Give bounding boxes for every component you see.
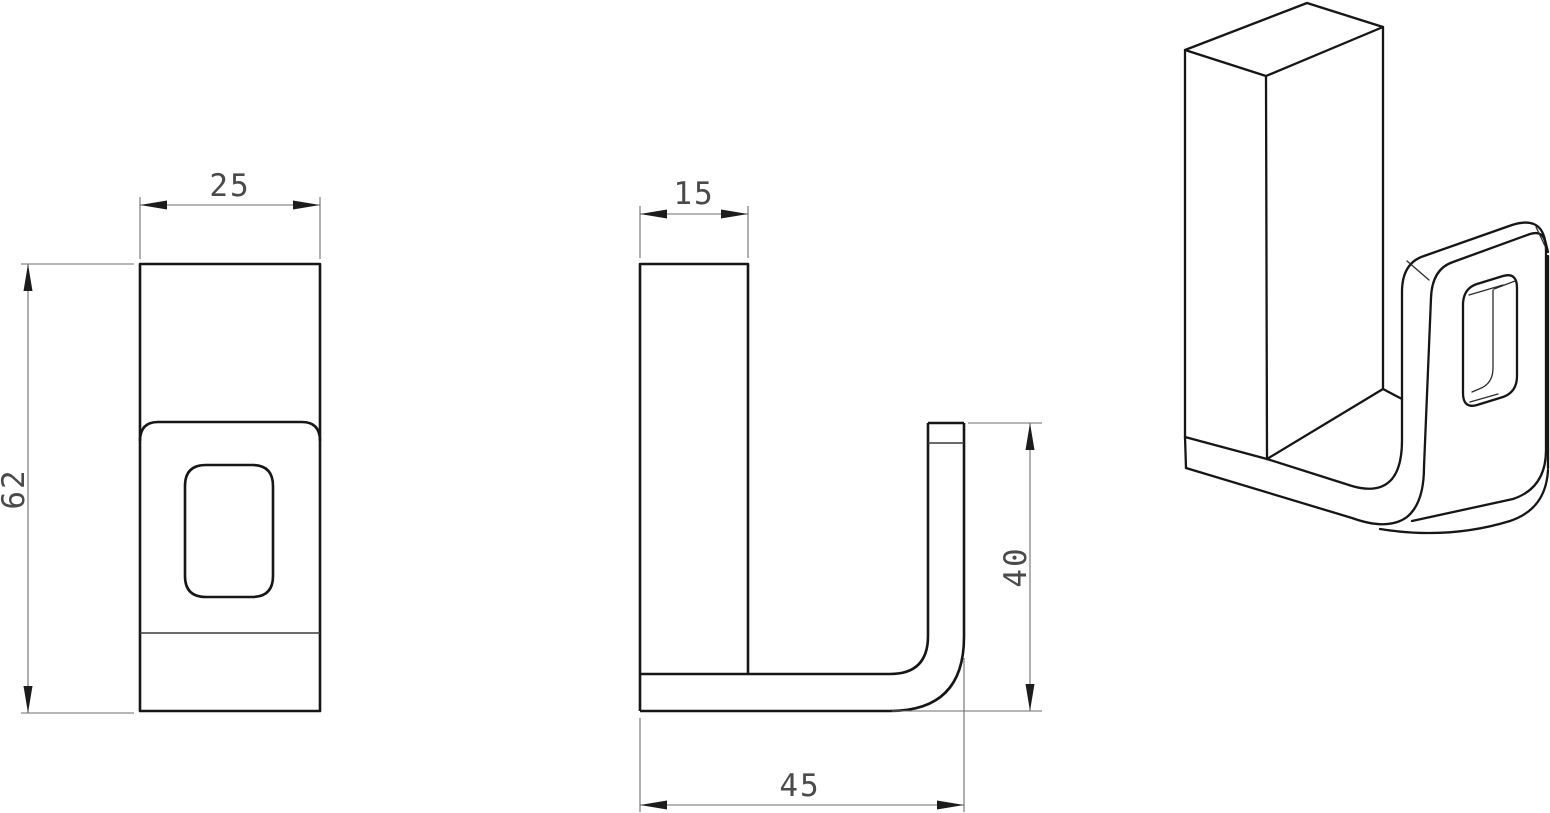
dim-label-15: 15 [673,176,714,212]
dim-label-45: 45 [779,768,820,804]
iso-base-left-corner-edge [1185,437,1186,468]
dimension-front-width: 25 [140,168,320,259]
front-hook-plate-top-edge [140,422,320,441]
arrowhead-up [24,264,33,291]
iso-plate-front-face-outline [1186,233,1546,524]
arrowhead-down [24,686,33,713]
side-base-inner-edge [640,423,928,674]
drawing-canvas: 25 62 15 40 [0,0,1550,813]
iso-hole-top-right-seam [1494,281,1515,289]
iso-block-front-edge [1266,76,1267,459]
arrowhead-right [293,201,320,210]
iso-bend-inner-edge [1267,223,1548,489]
arrowhead-left [640,801,667,810]
arrowhead-right [721,210,748,219]
side-plate-outline [640,264,748,711]
front-hole-outline [185,465,273,597]
arrowhead-up [1026,423,1035,450]
iso-hole-inner-top-wall [1469,285,1503,295]
iso-base-front-top-edge [1185,437,1267,459]
side-view [640,264,964,711]
iso-base-back-top-edge [1383,389,1402,399]
arrowhead-left [640,210,667,219]
iso-block-top-face [1185,3,1383,76]
dim-label-25: 25 [209,168,250,204]
arrowhead-right [937,801,964,810]
iso-plate-top-left-corner-seam [1407,261,1429,280]
iso-plate-back-bottom-sweep [1380,470,1548,533]
arrowhead-down [1026,684,1035,711]
dim-label-62: 62 [0,468,32,509]
dimension-side-thickness: 15 [640,176,748,258]
iso-block-bottom-right-edge [1267,389,1383,459]
dim-label-40: 40 [998,546,1034,587]
dimension-front-height: 62 [0,264,134,713]
front-view [140,264,320,711]
arrowhead-left [140,201,167,210]
dimension-base-length: 45 [640,658,964,812]
front-body-outline [140,264,320,711]
isometric-view [1185,3,1548,533]
iso-hole-inner-right-wall [1472,290,1493,392]
